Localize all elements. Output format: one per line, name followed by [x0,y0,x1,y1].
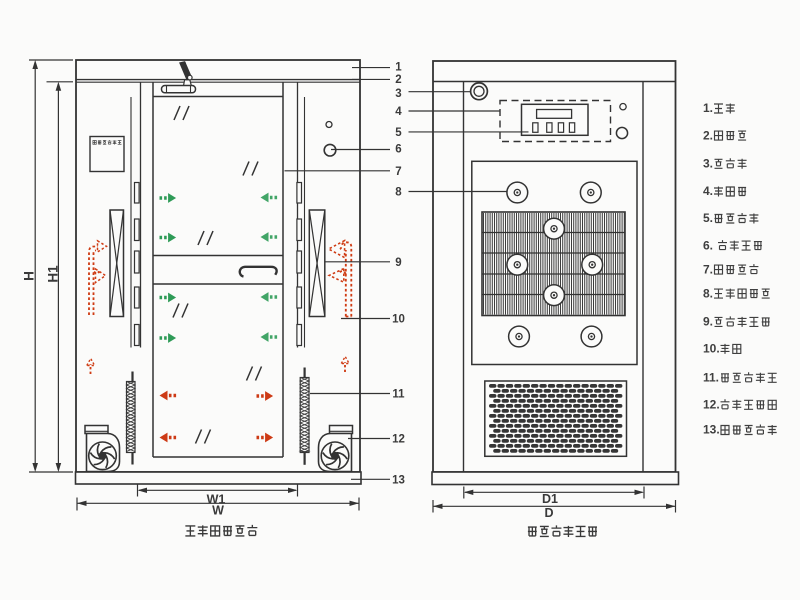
svg-text:13: 13 [392,474,405,486]
svg-text:D: D [544,506,553,520]
svg-text:8.: 8. [703,286,713,300]
svg-text:6: 6 [395,143,401,155]
svg-text:5: 5 [395,127,402,139]
svg-text:2.: 2. [703,128,713,142]
svg-text:13.: 13. [703,423,720,437]
svg-text:3.: 3. [703,157,713,171]
svg-text:9: 9 [395,257,401,269]
svg-text:1.: 1. [703,101,713,115]
svg-text:1: 1 [395,62,402,74]
svg-text:5.: 5. [703,211,713,225]
svg-text:2: 2 [395,74,401,86]
svg-text:6.: 6. [703,238,713,252]
svg-text:11.: 11. [703,371,719,385]
svg-text:H: H [22,271,37,281]
svg-text:H1: H1 [46,265,61,283]
svg-text:7: 7 [395,166,401,178]
svg-text:12.: 12. [703,398,720,412]
svg-text:10: 10 [392,314,405,326]
svg-text:3: 3 [395,88,401,100]
svg-text:4.: 4. [703,184,713,198]
svg-text:D1: D1 [542,492,558,506]
svg-text:W: W [212,504,224,518]
svg-text:7.: 7. [703,262,713,276]
svg-text:9.: 9. [703,315,713,329]
svg-text:10.: 10. [703,342,720,356]
svg-text:11: 11 [392,389,405,401]
svg-text:12: 12 [392,434,405,446]
svg-text:4: 4 [395,106,402,118]
svg-text:8: 8 [395,187,402,199]
